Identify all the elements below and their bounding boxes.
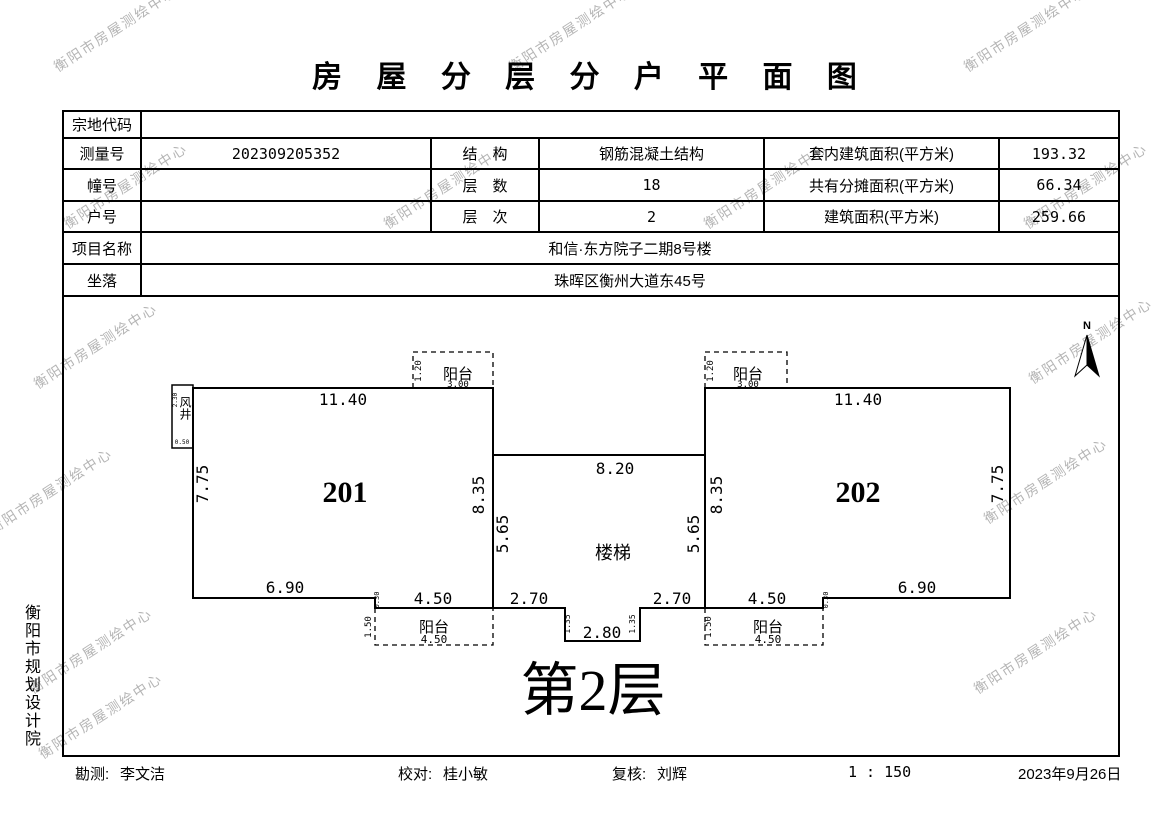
floorplan-document: 衡阳市房屋测绘中心 衡阳市房屋测绘中心 衡阳市房屋测绘中心 衡阳市房屋测绘中心 … <box>0 0 1169 827</box>
stair-top-dim: 8.20 <box>596 459 635 478</box>
stair-notch-depth-dim: 1.35 <box>628 614 637 633</box>
stair-notch-depth-dim: 1.35 <box>563 614 572 633</box>
surveyor-label: 勘测: <box>75 763 109 784</box>
survey-no-label: 测量号 <box>64 139 142 170</box>
balcony-bottom-depth-dim: 1.50 <box>364 616 374 638</box>
structure-value: 钢筋混凝土结构 <box>540 139 765 170</box>
unit-202-top-dim: 11.40 <box>834 390 882 409</box>
unit-201-top-dim: 11.40 <box>319 390 367 409</box>
project-name-label: 项目名称 <box>64 233 142 265</box>
checker-name: 桂小敏 <box>443 763 488 784</box>
floor-plan-drawing: 2.30 0.50 阳台 3.00 1.20 阳台 3.00 1.20 11.4… <box>62 297 1120 757</box>
floors-label: 层 数 <box>432 170 540 202</box>
floor-level-title: 第2层 <box>520 658 665 723</box>
floors-value: 18 <box>540 170 765 202</box>
level-value: 2 <box>540 202 765 233</box>
north-arrow-icon <box>1075 335 1087 376</box>
reviewer-name: 刘辉 <box>657 763 687 784</box>
inner-area-value: 193.32 <box>1000 139 1118 170</box>
unit-201-number: 201 <box>323 476 368 509</box>
stair-left-dim: 5.65 <box>493 515 512 554</box>
balcony-top-depth-dim: 1.20 <box>706 360 716 382</box>
inner-area-label: 套内建筑面积(平方米) <box>765 139 1000 170</box>
shared-area-value: 66.34 <box>1000 170 1118 202</box>
page-title: 房 屋 分 层 分 户 平 面 图 <box>62 52 1120 96</box>
map-scale: 1 : 150 <box>848 763 911 781</box>
unit-201-inner-dim: 8.35 <box>469 476 488 515</box>
unit-202-right-dim: 7.75 <box>988 465 1007 504</box>
balcony-top-width-dim: 3.00 <box>737 380 759 390</box>
stair-notch-dim: 2.80 <box>583 623 622 642</box>
stair-bottom-right-dim: 2.70 <box>653 589 692 608</box>
unit-202-inner-dim: 8.35 <box>707 476 726 515</box>
unit-no-value <box>142 202 432 233</box>
building-no-label: 幢号 <box>64 170 142 202</box>
project-name-value: 和信·东方院子二期8号楼 <box>142 233 1118 265</box>
north-arrow-icon <box>1087 335 1099 376</box>
north-label: N <box>1083 320 1091 332</box>
stair-right-dim: 5.65 <box>684 515 703 554</box>
unit-202-bottom-dim: 6.90 <box>898 578 937 597</box>
location-label: 坐落 <box>64 265 142 297</box>
air-shaft-label: 风井 <box>176 396 192 420</box>
wall-step-dim: 0.30 <box>373 592 381 609</box>
document-date: 2023年9月26日 <box>1018 763 1121 784</box>
stair-bottom-left-dim: 2.70 <box>510 589 549 608</box>
level-label: 层 次 <box>432 202 540 233</box>
balcony-top-depth-dim: 1.20 <box>414 360 424 382</box>
shared-area-label: 共有分摊面积(平方米) <box>765 170 1000 202</box>
reviewer-label: 复核: <box>612 763 646 784</box>
balcony-bottom-left-dim: 4.50 <box>414 589 453 608</box>
building-no-value <box>142 170 432 202</box>
air-shaft-width-dim: 0.50 <box>175 439 190 446</box>
balcony-bottom-width-dim: 4.50 <box>421 633 448 646</box>
parcel-code-value <box>142 112 1118 139</box>
stairs-label: 楼梯 <box>595 543 631 563</box>
balcony-bottom-depth-dim: 1.50 <box>704 616 714 638</box>
surveyor-name: 李文洁 <box>120 763 165 784</box>
parcel-code-label: 宗地代码 <box>64 112 142 139</box>
unit-201-bottom-dim: 6.90 <box>266 578 305 597</box>
wall-step-dim: 0.30 <box>822 592 830 609</box>
unit-no-label: 户号 <box>64 202 142 233</box>
total-area-label: 建筑面积(平方米) <box>765 202 1000 233</box>
checker-label: 校对: <box>398 763 432 784</box>
institute-name: 衡阳市规划设计院 <box>20 604 40 759</box>
survey-no-value: 202309205352 <box>142 139 432 170</box>
total-area-value: 259.66 <box>1000 202 1118 233</box>
info-table: 宗地代码 测量号 202309205352 结 构 钢筋混凝土结构 套内建筑面积… <box>64 112 1118 297</box>
location-value: 珠晖区衡州大道东45号 <box>142 265 1118 297</box>
unit-202-number: 202 <box>836 476 881 509</box>
balcony-bottom-width-dim: 4.50 <box>755 633 782 646</box>
balcony-top-width-dim: 3.00 <box>447 380 469 390</box>
unit-201-left-dim: 7.75 <box>193 465 212 504</box>
structure-label: 结 构 <box>432 139 540 170</box>
balcony-bottom-right-dim: 4.50 <box>748 589 787 608</box>
